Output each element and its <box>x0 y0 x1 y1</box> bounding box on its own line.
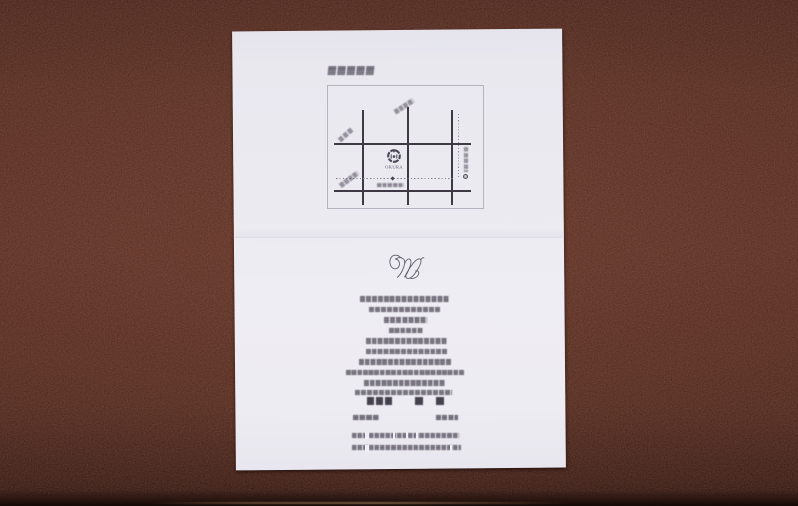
svg-text:OKURA: OKURA <box>385 164 403 169</box>
